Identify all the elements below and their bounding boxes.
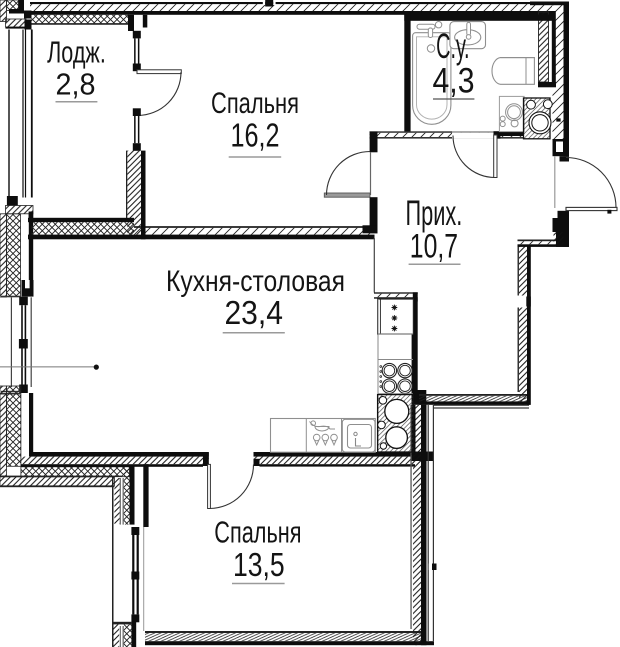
svg-text:13,5: 13,5 (233, 546, 285, 583)
svg-text:4,3: 4,3 (433, 60, 475, 100)
svg-text:16,2: 16,2 (231, 117, 280, 154)
svg-text:Лодж.: Лодж. (47, 35, 106, 70)
svg-text:2,8: 2,8 (56, 66, 96, 101)
svg-text:Спальня: Спальня (211, 87, 299, 120)
svg-text:10,7: 10,7 (410, 227, 458, 265)
svg-text:23,4: 23,4 (224, 295, 283, 332)
svg-text:Спальня: Спальня (214, 515, 301, 550)
svg-text:Кухня-столовая: Кухня-столовая (166, 265, 345, 298)
